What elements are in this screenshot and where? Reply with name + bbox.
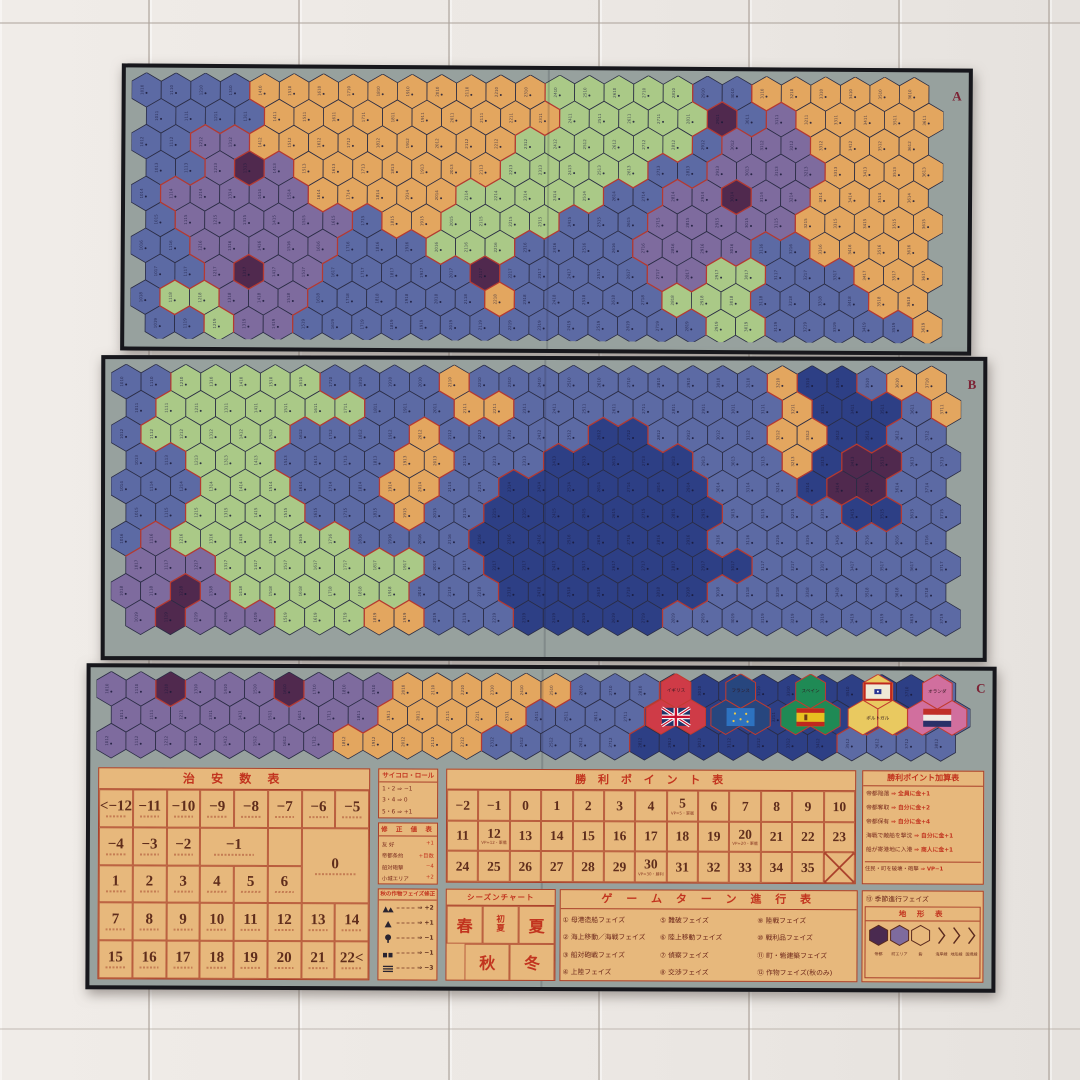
terrain-key-title: 地 形 表 [866,907,980,921]
hex-coordinate-label: 1911 [420,112,425,123]
hex-coordinate-label: 2717 [641,560,646,571]
hex-coordinate-label: 2113 [479,164,484,175]
season-chart-title: シーズンチャート [447,890,555,906]
security-cell: 13 [301,903,335,941]
hex-coordinate-label: 2812 [671,139,676,150]
hex-coordinate-label: 3112 [726,737,731,748]
hex-coordinate-label: 2111 [479,112,484,123]
hex-coordinate-label: 1114 [149,481,154,492]
hex-coordinate-label: 1510 [287,85,292,96]
hex-coordinate-label: 1018 [138,292,143,303]
hex-coordinate-label: 3317 [832,270,837,281]
hex-coordinate-label: 3715 [939,509,944,520]
hex-coordinate-label: 2514 [582,191,587,202]
hex-coordinate-label: 3216 [775,534,780,545]
hex-coordinate-label: 1917 [419,267,424,278]
hex-coordinate-label: 3213 [790,456,795,467]
hex-coordinate-label: 2218 [477,586,482,597]
hex-coordinate-label: 1412 [238,429,243,440]
hex-coordinate-label: 2918 [685,587,690,598]
hex-coordinate-label: 3110 [745,377,750,388]
hex-coordinate-label: 2218 [493,294,498,305]
hex-coordinate-label: 3413 [850,456,855,467]
victory-point-addition-table: 勝利ポイント加算表帝都陥落 ⇒ 全員に金+1帝都奪取 ⇒ 自分に金+2帝都保有 … [862,770,984,884]
hex-coordinate-label: 1313 [223,455,228,466]
security-cell: 3 [166,865,200,903]
vp-cell: 1 [541,790,573,821]
hex-coordinate-label: 2019 [448,319,453,330]
hex-coordinate-label: 2512 [566,429,571,440]
vp-add-line: 帝都奪取 ⇒ 自分に金+2 [866,805,980,813]
hex-coordinate-label: 2819 [684,321,689,332]
hex-coordinate-label: 2917 [714,269,719,280]
hex-coordinate-label: 1615 [331,215,336,226]
hex-coordinate-label: 2212 [477,429,482,440]
hex-coordinate-label: 2511 [597,113,602,124]
hex-coordinate-label: 2414 [552,190,557,201]
hex-coordinate-label: 1618 [298,586,303,597]
autumn-modifier-row: ⇒ −3 [378,960,436,975]
hex-coordinate-label: 2312 [489,737,494,748]
hex-coordinate-label: 1110 [134,683,139,694]
hex-coordinate-label: 1012 [139,136,144,147]
hex-coordinate-label: 3114 [759,192,764,203]
hex-coordinate-label: 3710 [904,686,909,697]
terrain-label: 町エリア [892,951,908,956]
mountain2-icon [382,903,395,913]
hex-coordinate-label: 1713 [343,455,348,466]
hex-coordinate-label: 1213 [194,455,199,466]
vp-cell: 33 [729,852,761,883]
hex-coordinate-label: 1811 [390,112,395,123]
hex-coordinate-label: 3116 [745,534,750,545]
terrain-label: 砦 [919,950,923,956]
hex-coordinate-label: 1412 [223,736,228,747]
hex-coordinate-label: 3313 [820,456,825,467]
hex-coordinate-label: 2319 [521,612,526,623]
hex-coordinate-label: 1919 [419,319,424,330]
turn-phase: ③ 船対砲戦フェイズ [562,945,659,963]
panel-letter-c: C [976,681,985,697]
security-cell: 11 [234,903,268,941]
hex-coordinate-label: 1112 [149,428,154,439]
security-table-title: 治 安 数 表 [99,768,369,790]
hex-coordinate-label: 1510 [252,684,257,695]
hex-coordinate-label: 1211 [213,111,218,122]
hex-coordinate-label: 2310 [490,685,495,696]
hex-coordinate-label: 3618 [906,296,911,307]
hex-coordinate-label: 3515 [879,508,884,519]
hex-coordinate-label: 1710 [312,684,317,695]
hex-coordinate-label: 1916 [387,534,392,545]
hex-coordinate-label: 2114 [447,481,452,492]
hex-coordinate-label: 2417 [551,560,556,571]
security-cell: 8 [132,903,166,941]
hex-coordinate-label: 2713 [656,165,661,176]
hex-coordinate-label: 2310 [523,87,528,98]
hex-coordinate-label: 3511 [892,115,897,126]
hex-coordinate-label: 2513 [581,456,586,467]
hex-coordinate-label: 2012 [400,736,405,747]
vp-cell: −2 [447,790,478,821]
hex-coordinate-label: 2610 [596,377,601,388]
hex-coordinate-label: 3112 [759,140,764,151]
vp-cell: 35 [792,852,824,883]
hex-coordinate-label: 1314 [208,481,213,492]
hex-coordinate-label: 1819 [389,319,394,330]
hex-coordinate-label: 3111 [774,114,779,125]
terrain-chevron [939,928,945,944]
hex-coordinate-label: 1710 [328,376,333,387]
hex-coordinate-label: 3014 [715,482,720,493]
security-cell: −9 [200,790,234,828]
hex-coordinate-label: 2010 [417,377,422,388]
nation-label: オランダ [928,688,947,695]
hex-coordinate-label: 2216 [493,242,498,253]
hex-coordinate-label: 2313 [522,455,527,466]
vp-cell: 31 [666,852,697,883]
hex-coordinate-label: 2318 [522,294,527,305]
security-cell: 15 [98,940,132,978]
panel-letter-a: A [952,88,961,104]
season-cell: 初夏 [483,906,519,944]
hex-coordinate-label: 2410 [519,685,524,696]
hex-coordinate-label: 1216 [179,533,184,544]
season-cell: 春 [447,906,483,944]
hex-coordinate-label: 2110 [430,684,435,695]
hex-coordinate-label: 1719 [342,612,347,623]
terrain-hex-hex-outline [912,925,930,945]
hex-coordinate-label: 2419 [551,612,556,623]
hex-coordinate-label: 3413 [862,166,867,177]
hex-coordinate-label: 2618 [596,586,601,597]
vp-add-line: 帝都保有 ⇒ 自分に金+4 [866,819,980,827]
hex-coordinate-label: 1519 [283,612,288,623]
hex-coordinate-label: 2713 [641,456,646,467]
terrain-hex-hex-mid [891,925,909,945]
hex-coordinate-label: 3111 [760,404,765,415]
hexmap-A: 1010111012101310141015101610171018101910… [130,72,944,343]
hex-coordinate-label: 2213 [492,455,497,466]
hex-coordinate-label: 2819 [670,613,675,624]
hex-coordinate-label: 2518 [581,294,586,305]
victory-point-table: 勝 利 ポ イ ン ト 表−2−1012345VP=5・軍艦6789101112… [446,769,856,885]
vp-cell: 5VP=5・軍艦 [667,790,698,821]
hex-coordinate-label: 2616 [596,534,601,545]
terrain-hex-hex-dark [870,925,888,945]
hex-coordinate-label: 2312 [523,138,528,149]
hex-coordinate-label: 3211 [790,404,795,415]
hex-coordinate-label: 3316 [805,535,810,546]
hex-coordinate-label: 3414 [835,482,840,493]
hex-coordinate-label: 1712 [346,137,351,148]
hex-coordinate-label: 1712 [328,429,333,440]
autumn-modifier-value: ⇒ +1 [417,920,433,927]
hex-coordinate-label: 1318 [227,292,232,303]
season-cell: 冬 [510,943,555,981]
hex-coordinate-label: 2914 [700,191,705,202]
hex-coordinate-label: 1416 [238,533,243,544]
hex-coordinate-label: 1616 [298,533,303,544]
vp-cell: 17 [635,821,667,852]
hex-coordinate-label: 3013 [730,456,735,467]
hexmap-B: 1010111012101310141015101610171018101910… [111,364,962,650]
season-cell: 秋 [465,943,510,981]
vp-cell: 12VP=12・軍艦 [478,820,510,851]
hex-coordinate-label: 2212 [493,138,498,149]
hex-coordinate-label: 1910 [371,684,376,695]
hex-coordinate-label: 3516 [864,535,869,546]
hex-coordinate-label: 3415 [850,508,855,519]
hex-coordinate-label: 3015 [744,217,749,228]
netherlands-flag [923,709,951,727]
hex-coordinate-label: 2715 [655,217,660,228]
hex-coordinate-label: 3217 [803,270,808,281]
hex-coordinate-label: 1817 [389,267,394,278]
leader-line [397,952,416,953]
hex-coordinate-label: 3711 [939,404,944,415]
hex-coordinate-label: 1710 [346,86,351,97]
hex-coordinate-label: 3114 [745,482,750,493]
hex-coordinate-label: 2219 [491,612,496,623]
hex-coordinate-label: 3512 [845,738,850,749]
hex-coordinate-label: 1112 [134,735,139,746]
hex-coordinate-label: 2515 [596,217,601,228]
hex-coordinate-label: 2017 [448,267,453,278]
hex-coordinate-label: 1310 [193,683,198,694]
hex-coordinate-label: 2711 [641,403,646,414]
hex-coordinate-label: 2217 [492,560,497,571]
hex-coordinate-label: 1515 [301,215,306,226]
hex-coordinate-label: 1611 [297,710,302,721]
hex-coordinate-label: 1119 [182,318,187,329]
hex-coordinate-label: 1716 [328,534,333,545]
hex-coordinate-label: 3019 [743,321,748,332]
hex-coordinate-label: 2214 [477,481,482,492]
modifier-table-title: 修 正 値 表 [379,823,437,836]
hex-coordinate-label: 3716 [924,535,929,546]
security-cell: 14 [335,904,369,942]
hex-coordinate-label: 2417 [566,268,571,279]
hex-coordinate-label: 3510 [845,686,850,697]
hex-coordinate-label: 3518 [876,296,881,307]
hex-coordinate-label: 2613 [626,165,631,176]
hex-coordinate-label: 2413 [551,455,556,466]
security-cell: 7 [99,903,133,941]
hex-coordinate-label: 1417 [271,266,276,277]
hex-coordinate-label: 3418 [847,296,852,307]
hex-coordinate-label: 2116 [463,242,468,253]
hex-coordinate-label: 2013 [432,455,437,466]
hex-coordinate-label: 2418 [536,586,541,597]
hex-coordinate-label: 1010 [139,84,144,95]
map-board-panel-c: 1010111012101310141015101610171018101910… [85,663,996,992]
turn-table-title: ゲ ー ム タ ー ン 進 行 表 [561,890,857,910]
vp-note: VP=5・軍艦 [671,811,694,815]
security-table-grid: <−12−11−10−9−8−7−6−5−4−3−2−1012345678910… [98,789,369,979]
hex-coordinate-label: 3115 [773,218,778,229]
hex-coordinate-label: 2416 [552,242,557,253]
hex-coordinate-label: 2316 [507,534,512,545]
hex-coordinate-label: 3213 [803,166,808,177]
hex-coordinate-label: 3617 [909,561,914,572]
hex-coordinate-label: 1117 [183,266,188,277]
hex-coordinate-label: 3511 [880,404,885,415]
hex-coordinate-label: 3419 [849,613,854,624]
hex-coordinate-label: 3310 [819,88,824,99]
hex-coordinate-label: 2619 [611,613,616,624]
hex-coordinate-label: 2315 [521,508,526,519]
hex-coordinate-label: 2718 [626,586,631,597]
hex-coordinate-label: 1915 [419,215,424,226]
hex-coordinate-label: 2014 [417,481,422,492]
hex-coordinate-label: 1613 [331,163,336,174]
hex-coordinate-label: 3010 [716,377,721,388]
hex-coordinate-label: 2312 [507,429,512,440]
hex-coordinate-label: 1813 [390,164,395,175]
hex-coordinate-label: 2412 [552,139,557,150]
season-chart: シーズンチャート春初夏夏秋冬 [445,889,555,981]
hex-coordinate-label: 1311 [243,111,248,122]
hex-coordinate-label: 3616 [894,535,899,546]
hex-coordinate-label: 3513 [892,167,897,178]
hex-coordinate-label: 2510 [567,377,572,388]
vp-cell: 34 [761,852,792,883]
hex-coordinate-label: 1516 [286,241,291,252]
hex-coordinate-label: 3518 [864,587,869,598]
security-cell: 1 [99,865,133,903]
hex-coordinate-label: 2015 [432,508,437,519]
security-cell: 6 [267,866,301,904]
hex-coordinate-label: 1915 [402,507,407,518]
security-cell: 20 [267,941,301,979]
hex-coordinate-label: 2517 [596,268,601,279]
hex-coordinate-label: 3712 [904,738,909,749]
hexmap-C: 1010111012101310141015101610171018101910… [96,671,970,766]
hex-coordinate-label: 2011 [432,403,437,414]
hex-coordinate-label: 1114 [168,188,173,199]
hex-coordinate-label: 2510 [549,685,554,696]
hex-coordinate-label: 1010 [104,683,109,694]
hex-coordinate-label: 2016 [434,241,439,252]
game-turn-sequence-table: ゲ ー ム タ ー ン 進 行 表① 母港造船フェイズ② 海上移動／海戦フェイズ… [559,889,857,982]
hex-coordinate-label: 1415 [271,215,276,226]
vp-cell: 15 [572,821,604,852]
vp-cell: 4 [635,790,667,821]
hex-coordinate-label: 2711 [656,113,661,124]
hex-coordinate-label: 2112 [430,736,435,747]
hex-coordinate-label: 2410 [553,87,558,98]
vp-cell: 29 [604,852,635,883]
hex-coordinate-label: 1214 [179,481,184,492]
hex-coordinate-label: 1416 [257,240,262,251]
hex-coordinate-label: 1411 [253,402,258,413]
hex-coordinate-label: 2210 [460,684,465,695]
hex-coordinate-label: 2710 [626,377,631,388]
hex-coordinate-label: 1111 [149,709,154,720]
hex-coordinate-label: 2614 [611,191,616,202]
hex-coordinate-label: 1419 [271,318,276,329]
hex-coordinate-label: 3017 [744,269,749,280]
hex-coordinate-label: 1912 [387,429,392,440]
hex-coordinate-label: 2812 [656,429,661,440]
hex-coordinate-label: 1713 [360,163,365,174]
hex-coordinate-label: 1511 [267,710,272,721]
hex-coordinate-label: 2714 [641,191,646,202]
hex-coordinate-label: 2414 [537,482,542,493]
hex-coordinate-label: 2215 [508,216,513,227]
hex-coordinate-label: 3514 [865,482,870,493]
hex-coordinate-label: 2519 [581,613,586,624]
hex-coordinate-label: 2016 [417,534,422,545]
hex-coordinate-label: 1511 [283,403,288,414]
vp-cell: 11 [447,820,478,851]
hex-coordinate-label: 1115 [164,507,169,518]
hex-coordinate-label: 1816 [357,534,362,545]
hex-coordinate-label: 2513 [597,165,602,176]
hex-coordinate-label: 1210 [164,683,169,694]
security-cell: −7 [268,790,302,828]
hex-coordinate-label: 3215 [803,218,808,229]
hex-coordinate-label: 2614 [596,482,601,493]
hex-coordinate-label: 3512 [877,141,882,152]
hex-coordinate-label: 3513 [879,456,884,467]
terrain-label: 地形線 [951,951,963,957]
hex-coordinate-label: 1814 [358,481,363,492]
hex-coordinate-label: 3619 [909,613,914,624]
security-cell: 10 [200,903,234,941]
hex-coordinate-label: 3318 [805,587,810,598]
hex-coordinate-label: 2411 [534,711,539,722]
hex-coordinate-label: 2613 [611,456,616,467]
hex-coordinate-label: 2411 [567,113,572,124]
panel-letter-b: B [968,377,977,393]
hex-coordinate-label: 3010 [697,685,702,696]
hex-coordinate-label: 1017 [153,266,158,277]
hex-coordinate-label: 1218 [178,585,183,596]
hex-coordinate-label: 2810 [638,685,643,696]
hex-coordinate-label: 2115 [478,216,483,227]
hex-coordinate-label: 1015 [153,214,158,225]
hex-coordinate-label: 3417 [849,561,854,572]
vp-cell: 30VP=30・勝利 [635,852,667,883]
hex-coordinate-label: 1518 [286,292,291,303]
hex-coordinate-label: 3011 [730,403,735,414]
hex-coordinate-label: 1614 [298,481,303,492]
hex-coordinate-label: 3018 [729,295,734,306]
security-cell: −8 [234,790,268,828]
season-row-1: 春初夏夏 [447,906,555,944]
hex-coordinate-label: 3012 [716,430,721,441]
vp-cell: 16 [604,821,635,852]
hex-coordinate-label: 2313 [538,164,543,175]
hex-coordinate-label: 1718 [345,293,350,304]
security-cell: −3 [133,827,167,865]
hex-coordinate-label: 1312 [228,137,233,148]
vp-cell: 18 [667,821,698,852]
hex-coordinate-label: 1711 [361,112,366,123]
hex-coordinate-label: 1614 [316,189,321,200]
hex-coordinate-label: 2911 [715,114,720,125]
vp-cell: 21 [761,822,792,853]
hex-coordinate-label: 2913 [715,165,720,176]
security-cell: 16 [132,941,166,979]
turn-phase: ⑩ 戦利品フェイズ [757,928,854,946]
hex-coordinate-label: 1617 [330,267,335,278]
hex-coordinate-label: 3416 [847,244,852,255]
hex-coordinate-label: 2213 [508,164,513,175]
hex-coordinate-label: 1914 [387,481,392,492]
